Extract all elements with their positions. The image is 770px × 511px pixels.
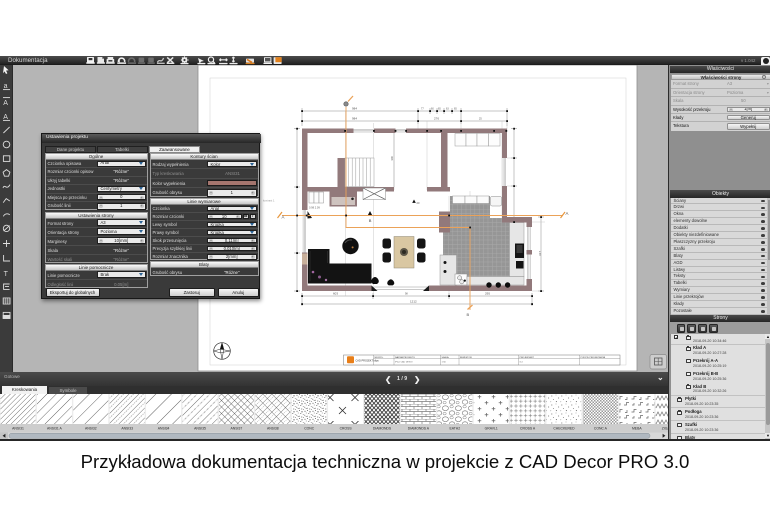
svg-text:CAD PROJEKT klips: CAD PROJEKT klips (356, 360, 380, 363)
svg-text:B: B (369, 218, 372, 223)
svg-text:NR RYS.: NR RYS. (375, 357, 384, 359)
svg-text:CROSS A: CROSS A (520, 427, 536, 431)
svg-text:984: 984 (352, 107, 357, 111)
svg-text:ANSI34: ANSI34 (158, 427, 170, 431)
svg-text:CHECKERED: CHECKERED (553, 427, 575, 431)
svg-text:PROJEKTANT: PROJEKTANT (520, 356, 535, 359)
svg-text:DIAMONDS A: DIAMONDS A (408, 427, 430, 431)
svg-text:GRAVL1: GRAVL1 (485, 427, 498, 431)
svg-text:ANSI38: ANSI38 (267, 427, 279, 431)
svg-text:a: a (4, 83, 8, 90)
svg-text:EATH2: EATH2 (449, 427, 460, 431)
svg-text:0.98 2.09: 0.98 2.09 (309, 206, 320, 210)
svg-text:ANSI31 A: ANSI31 A (47, 427, 62, 431)
svg-text:317: 317 (538, 251, 542, 256)
svg-text:A: A (3, 100, 8, 107)
svg-text:A: A (282, 215, 285, 220)
svg-text:INWESTOR: INWESTOR (460, 357, 472, 359)
svg-text:300: 300 (390, 156, 394, 161)
svg-text:ANSI37: ANSI37 (231, 427, 243, 431)
svg-text:SKALA: SKALA (442, 356, 450, 359)
svg-text:A: A (566, 211, 569, 216)
svg-text:984: 984 (352, 117, 357, 121)
svg-text:1212: 1212 (410, 300, 417, 304)
svg-text:276: 276 (434, 117, 439, 121)
svg-text:CONC: CONC (304, 427, 315, 431)
svg-text:ANSI35: ANSI35 (194, 427, 206, 431)
svg-text:ANSI31: ANSI31 (12, 427, 24, 431)
svg-text:DIAMONDS: DIAMONDS (373, 427, 392, 431)
svg-text:CROSS: CROSS (340, 427, 353, 431)
svg-text:/Plan CAD DESO/: /Plan CAD DESO/ (395, 361, 413, 364)
svg-text:295: 295 (485, 292, 490, 296)
svg-text:T: T (4, 271, 9, 278)
svg-text:ANSI32: ANSI32 (85, 427, 97, 431)
svg-text:kontrast 1: kontrast 1 (263, 199, 275, 203)
svg-text:ANSI33: ANSI33 (121, 427, 133, 431)
svg-text:CONC A: CONC A (594, 427, 608, 431)
svg-text:PODPIS PROJEKTANTA: PODPIS PROJEKTANTA (581, 356, 606, 359)
svg-text:603: 603 (333, 292, 338, 296)
svg-text:A: A (3, 114, 8, 121)
svg-text:MEBA: MEBA (632, 427, 642, 431)
svg-text:B: B (467, 312, 470, 317)
svg-text:NAZWA PROJEKTU: NAZWA PROJEKTU (395, 356, 415, 359)
